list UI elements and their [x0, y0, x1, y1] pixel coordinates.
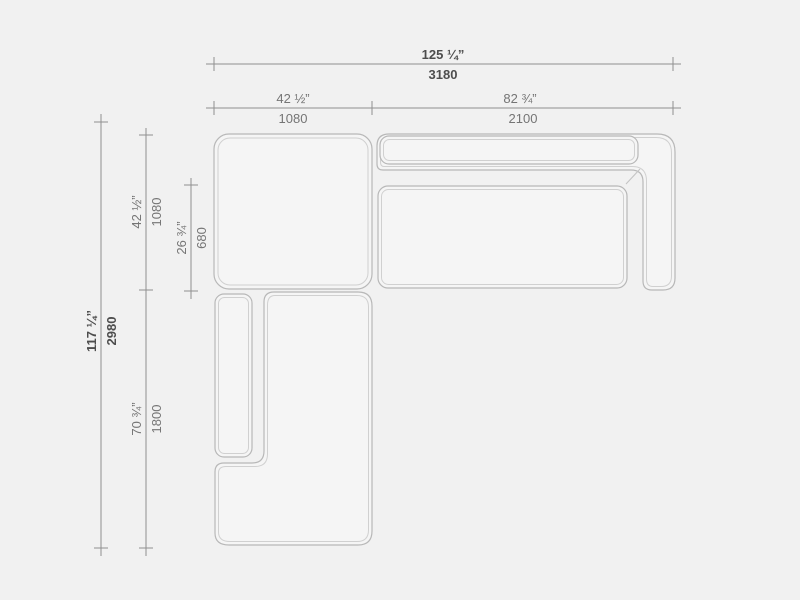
dim-overall-width-imperial: 125 ¼” — [422, 47, 465, 62]
dim-seat-depth-imperial: 26 ¾” — [174, 221, 189, 254]
dim-overall-depth-metric: 2980 — [104, 317, 119, 346]
dim-right-module-width-imperial: 82 ¾” — [503, 91, 536, 106]
dim-overall-depth-imperial: 117 ¼” — [84, 310, 99, 352]
right-sofa-back-cushion — [380, 136, 638, 164]
sofa-plan-svg: 125 ¼” 3180 42 ½” 1080 82 ¾” 2100 117 ¼”… — [0, 0, 800, 600]
dim-overall-width: 125 ¼” 3180 — [206, 47, 681, 82]
dim-module-widths: 42 ½” 1080 82 ¾” 2100 — [206, 91, 681, 126]
dim-overall-depth: 117 ¼” 2980 — [84, 114, 119, 556]
dim-top-module-depth-metric: 1080 — [149, 198, 164, 227]
dim-overall-width-metric: 3180 — [429, 67, 458, 82]
dim-left-module-width-imperial: 42 ½” — [276, 91, 309, 106]
left-chaise-back-cushion — [215, 294, 252, 457]
right-sofa-miter-seam — [626, 169, 640, 184]
corner-module-outline — [214, 134, 372, 289]
right-sofa-seat-cushion — [378, 186, 627, 288]
sofa-dimension-drawing: 125 ¼” 3180 42 ½” 1080 82 ¾” 2100 117 ¼”… — [0, 0, 800, 600]
dim-top-module-depth-imperial: 42 ½” — [129, 195, 144, 228]
right-sofa-module — [377, 134, 675, 290]
dim-seat-depth-metric: 680 — [194, 227, 209, 249]
dim-seat-depth: 26 ¾” 680 — [174, 178, 209, 299]
corner-module — [214, 134, 372, 289]
dim-bottom-module-length-metric: 1800 — [149, 405, 164, 434]
dim-right-module-width-metric: 2100 — [509, 111, 538, 126]
left-chaise-module — [215, 292, 372, 545]
dim-left-column: 42 ½” 1080 70 ¾” 1800 — [129, 128, 164, 556]
dim-bottom-module-length-imperial: 70 ¾” — [129, 402, 144, 435]
dim-left-module-width-metric: 1080 — [279, 111, 308, 126]
